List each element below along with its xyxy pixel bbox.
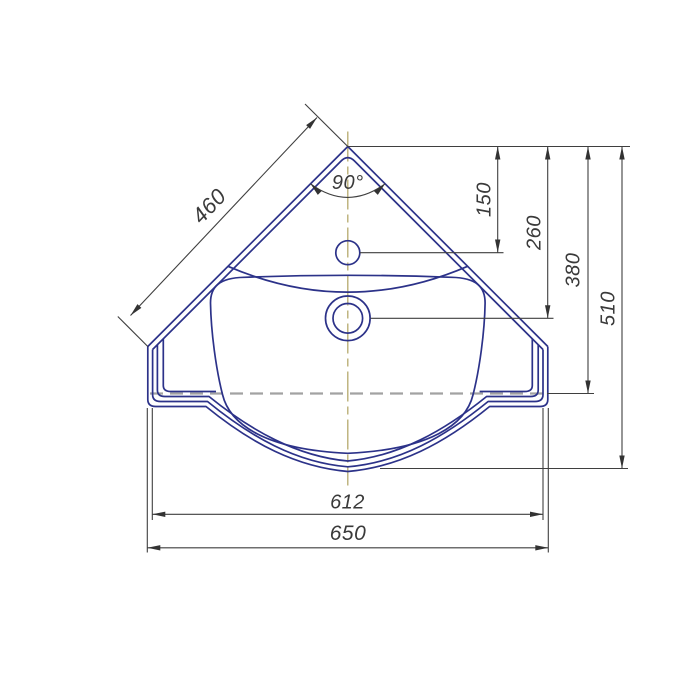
dimension-labels: 460 90° 150 260 380 510 612 650 — [187, 172, 620, 545]
drawing-canvas: 460 90° 150 260 380 510 612 650 — [0, 0, 700, 700]
ext-line-460-bottom — [118, 317, 148, 347]
dim-460-label: 460 — [187, 183, 232, 228]
dim-612-label: 612 — [330, 492, 365, 514]
sink-ledge-left — [163, 339, 216, 392]
dim-650-label: 650 — [330, 522, 367, 545]
dim-510-label: 510 — [598, 291, 620, 326]
sink-ledge-right — [480, 339, 533, 392]
drawing-page: 460 90° 150 260 380 510 612 650 — [0, 0, 700, 700]
dim-260-label: 260 — [524, 215, 546, 251]
dimension-arrows — [129, 116, 625, 551]
dimension-lines — [118, 104, 630, 553]
dim-90deg-label: 90° — [332, 172, 364, 194]
dim-380-label: 380 — [563, 253, 585, 288]
dim-150-label: 150 — [474, 182, 496, 217]
